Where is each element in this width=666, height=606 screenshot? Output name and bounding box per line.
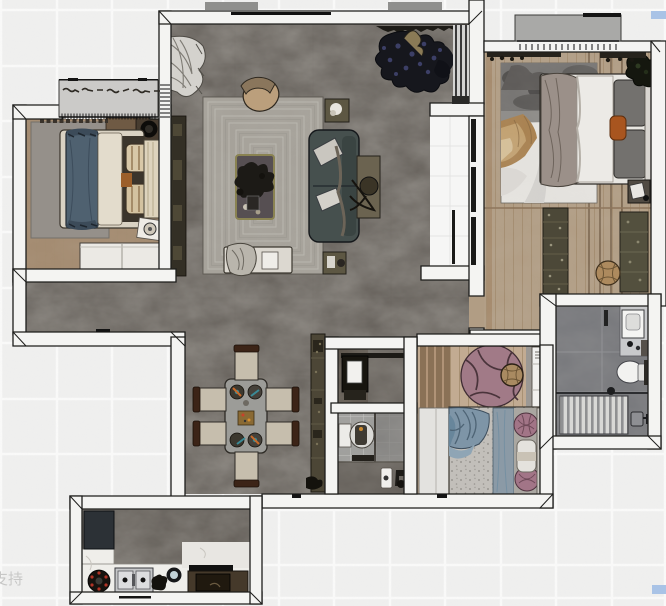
svg-text:支持: 支持 [0,571,23,588]
